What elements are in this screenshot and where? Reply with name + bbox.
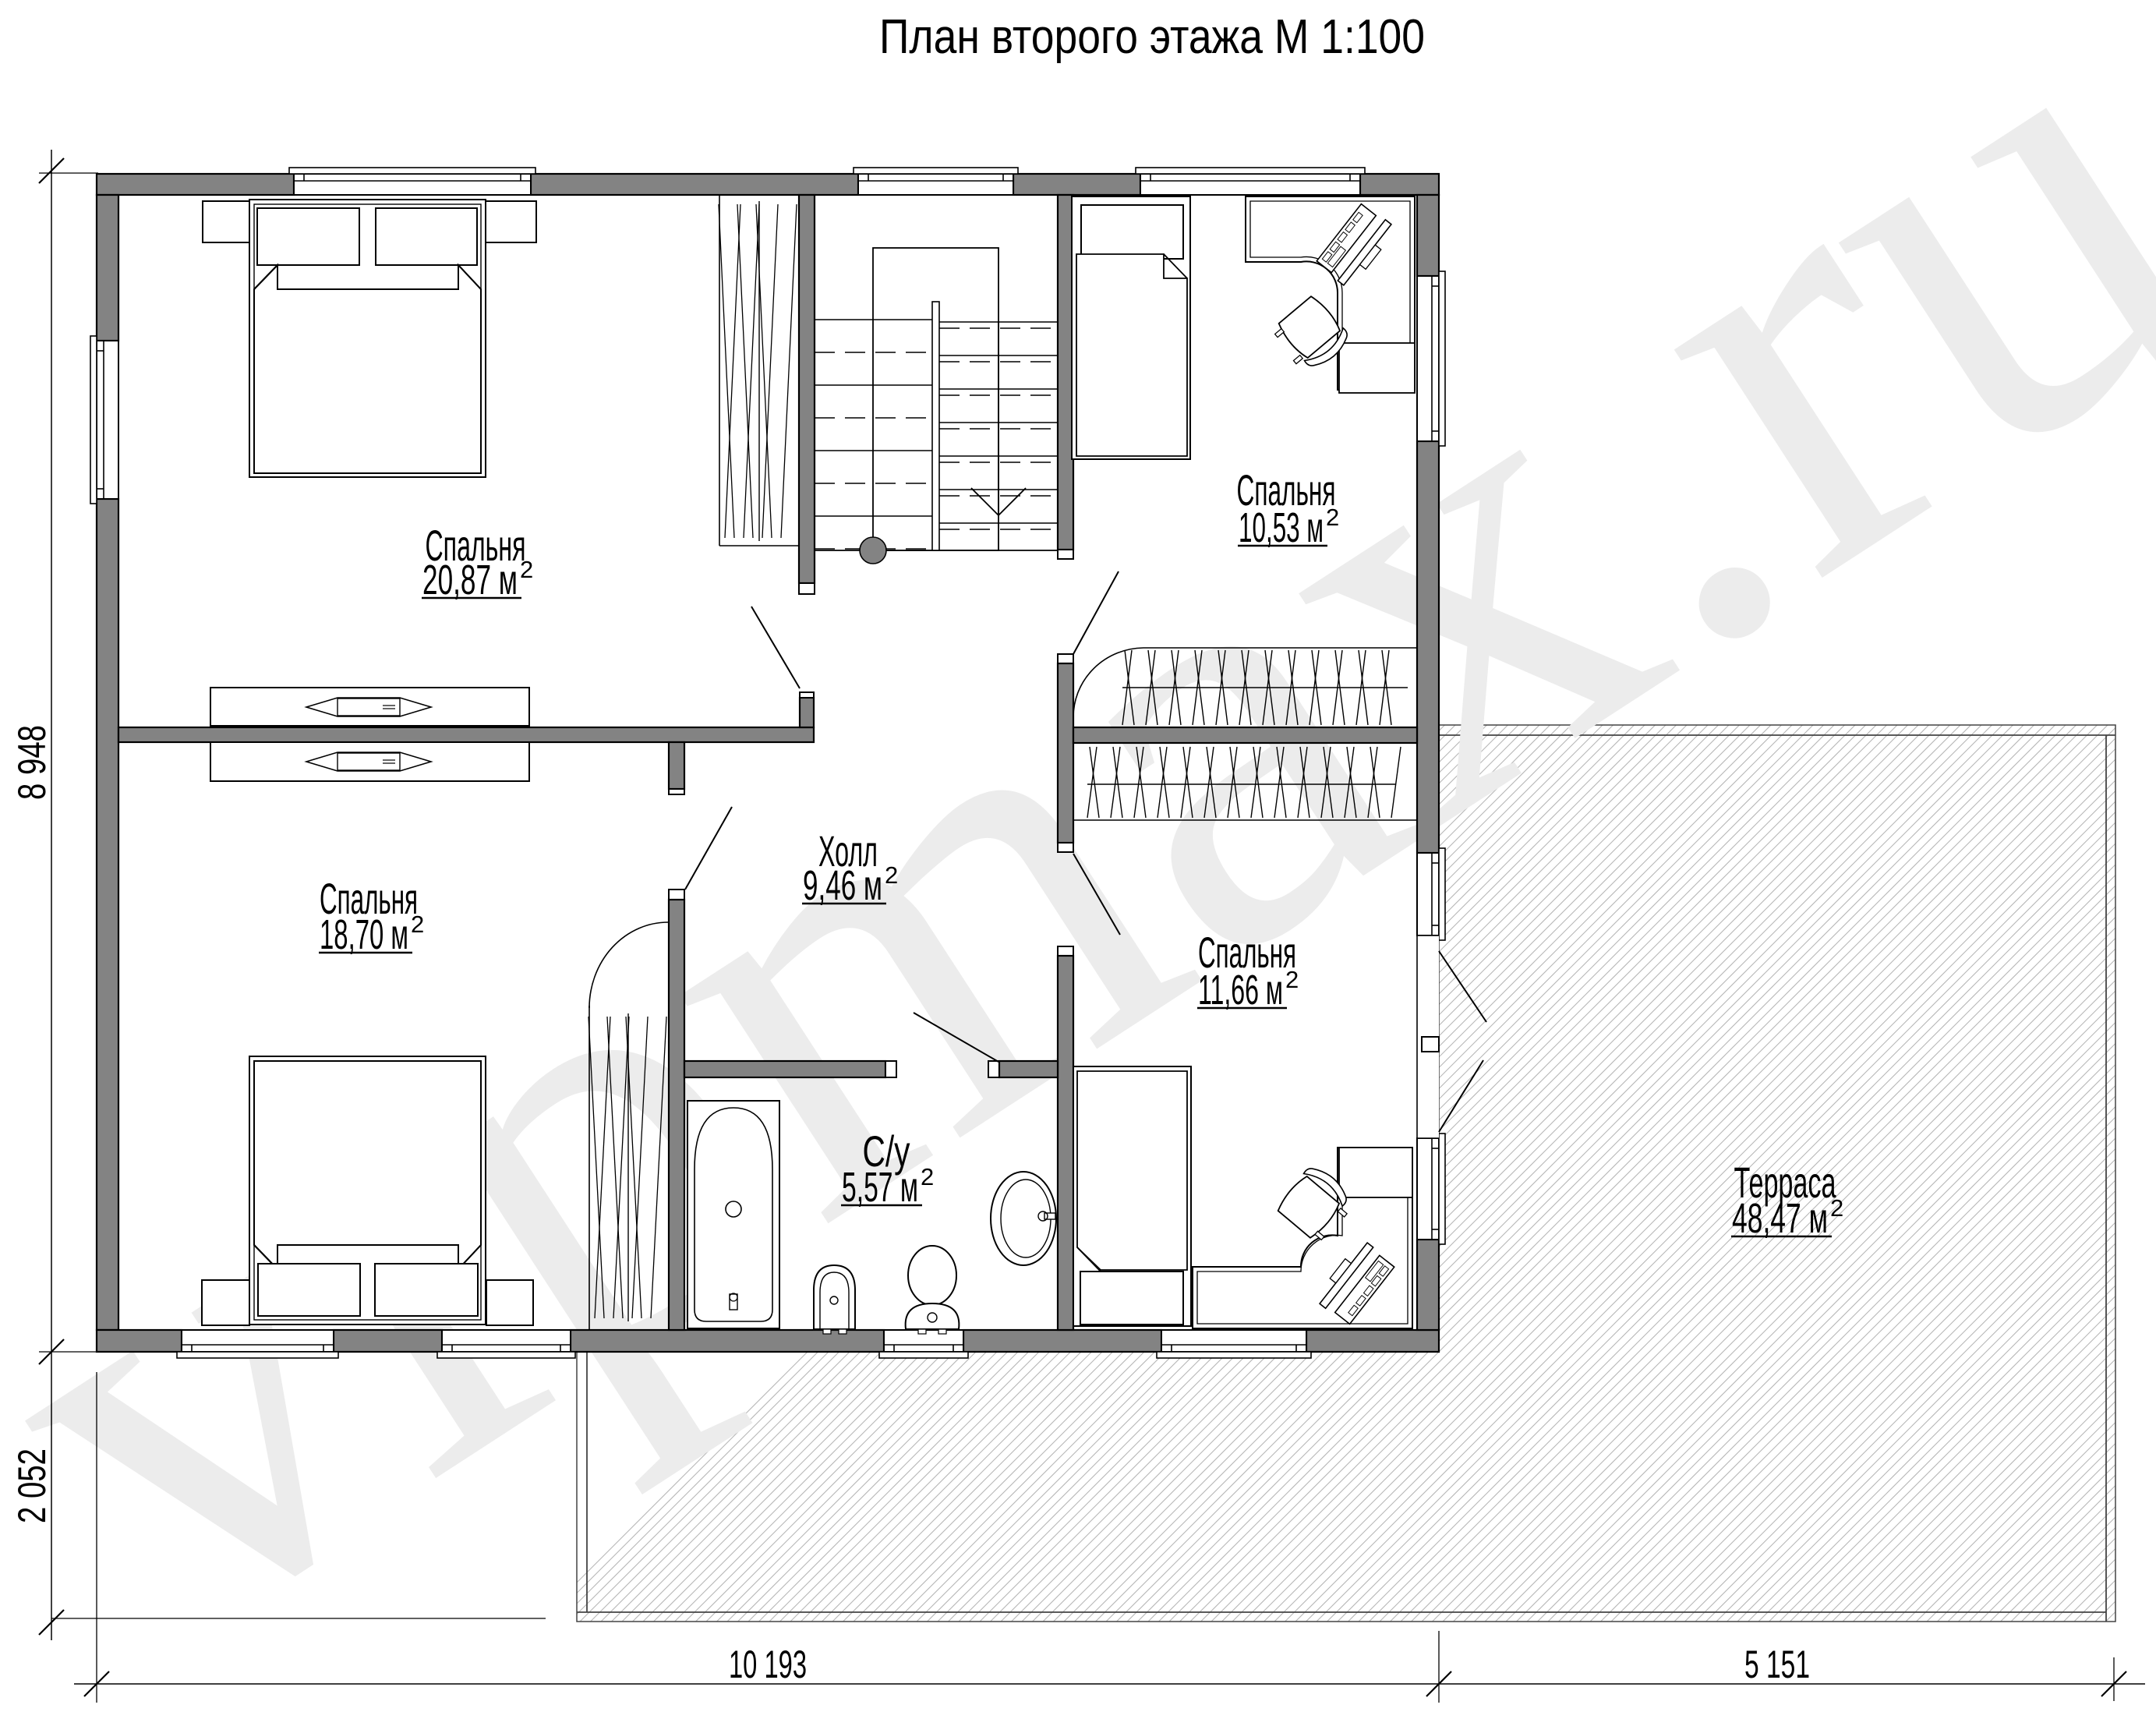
svg-text:20,87 м: 20,87 м bbox=[422, 557, 518, 603]
svg-text:2: 2 bbox=[1830, 1194, 1843, 1222]
svg-text:2: 2 bbox=[1326, 504, 1339, 531]
svg-text:2: 2 bbox=[1285, 966, 1299, 993]
svg-text:2: 2 bbox=[411, 911, 424, 938]
svg-text:10 193: 10 193 bbox=[729, 1643, 807, 1686]
svg-text:18,70 м: 18,70 м bbox=[320, 911, 408, 958]
svg-text:11,66 м: 11,66 м bbox=[1198, 967, 1283, 1013]
svg-text:9,46 м: 9,46 м bbox=[803, 862, 882, 909]
svg-text:48,47 м: 48,47 м bbox=[1732, 1195, 1828, 1242]
svg-text:2 052: 2 052 bbox=[10, 1448, 54, 1523]
svg-text:2: 2 bbox=[520, 556, 533, 583]
svg-text:2: 2 bbox=[921, 1163, 934, 1190]
svg-text:10,53 м: 10,53 м bbox=[1239, 504, 1324, 551]
svg-text:2: 2 bbox=[885, 861, 898, 889]
svg-text:8 948: 8 948 bbox=[10, 725, 54, 800]
svg-text:План второго этажа М 1:100: План второго этажа М 1:100 bbox=[879, 10, 1425, 64]
svg-text:5,57 м: 5,57 м bbox=[842, 1164, 918, 1211]
svg-text:5 151: 5 151 bbox=[1744, 1643, 1810, 1686]
